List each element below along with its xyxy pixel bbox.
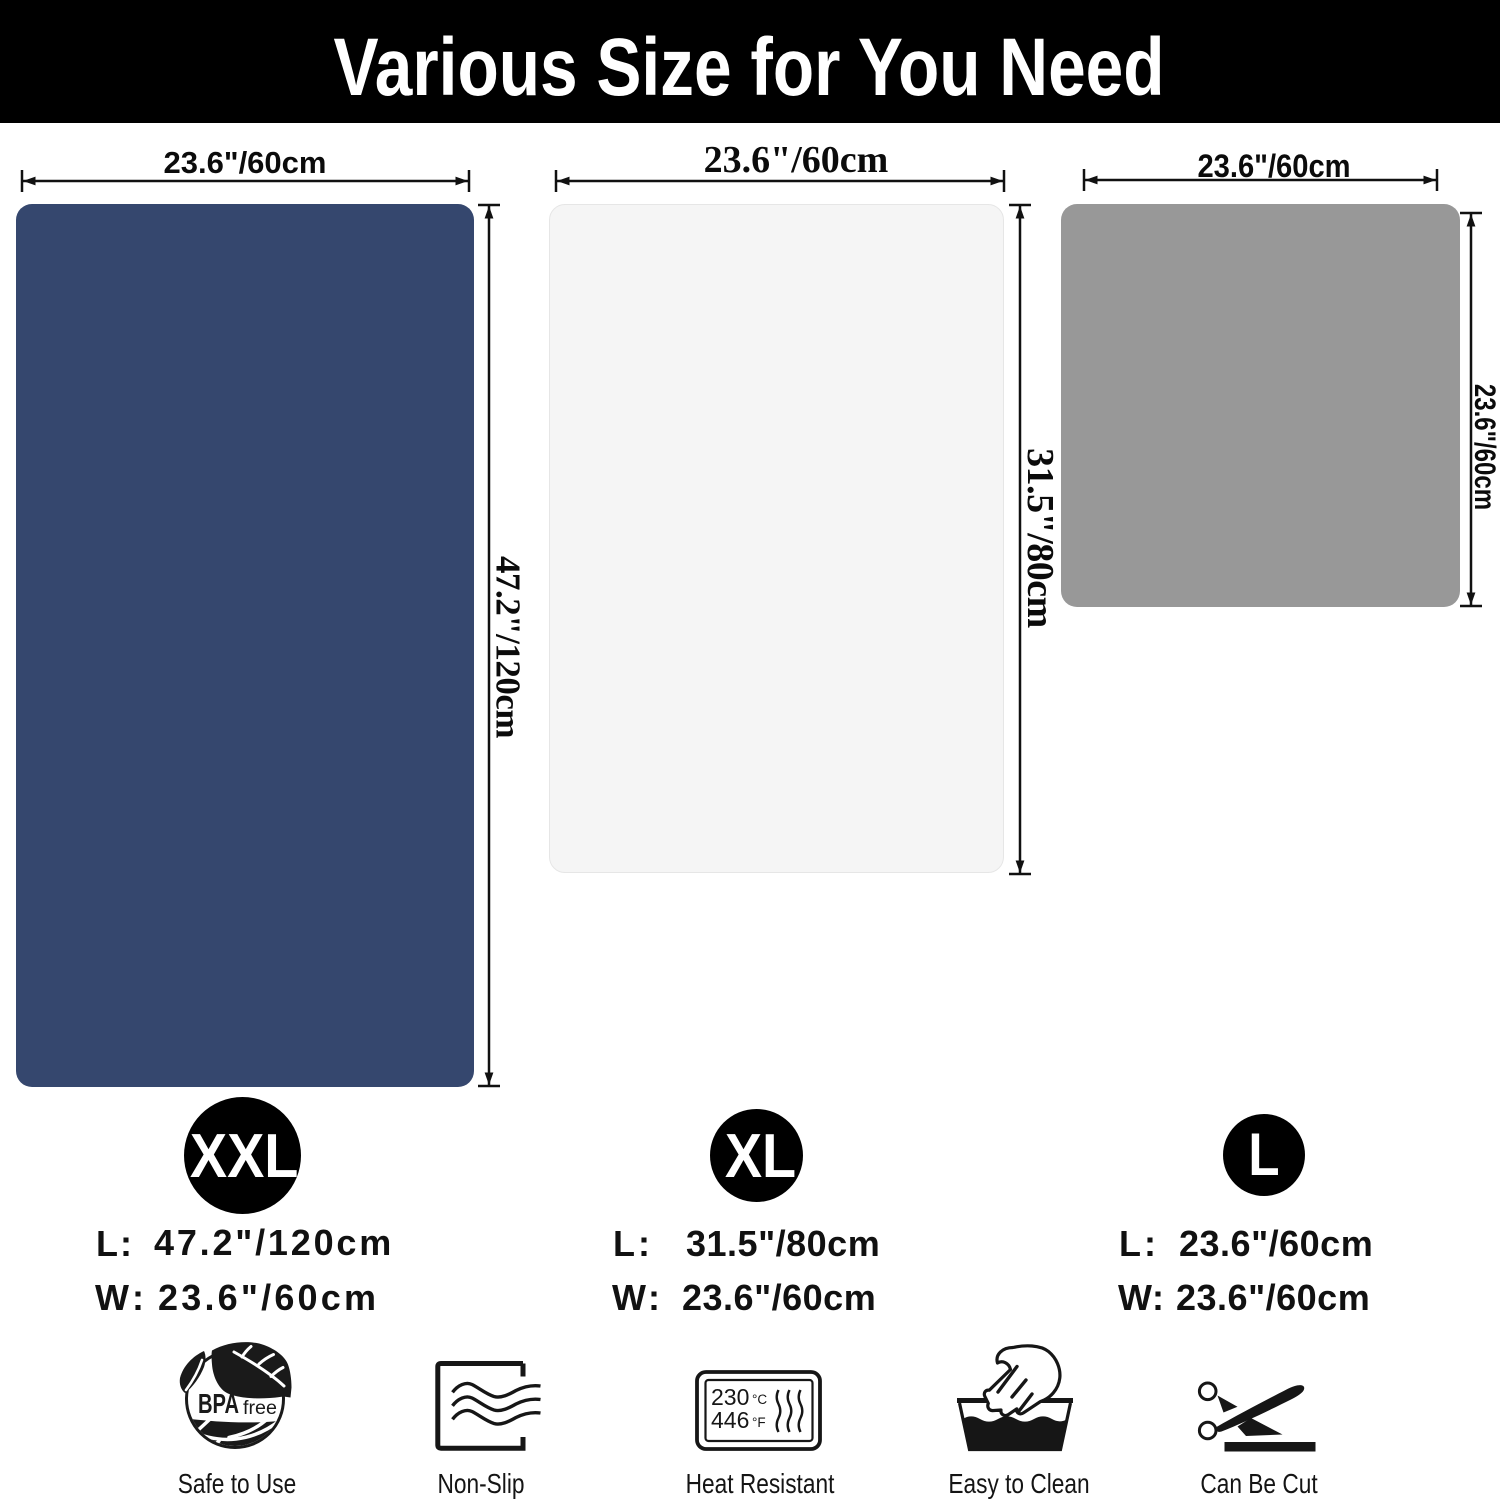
svg-text:446: 446 [711,1407,749,1433]
svg-text:°C: °C [752,1392,767,1407]
svg-text:°F: °F [752,1415,766,1430]
svg-text:BPA: BPA [198,1388,239,1419]
svg-text:free: free [243,1398,277,1419]
